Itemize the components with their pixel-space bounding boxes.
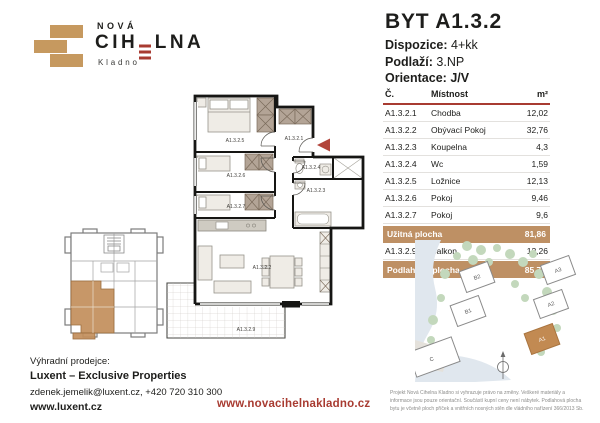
legal-disclaimer: Projekt Nová Cihelna Kladno si vyhrazuje… bbox=[390, 389, 587, 413]
cell-room: Obývací Pokoj bbox=[431, 125, 512, 135]
brochure-page: NOVÁ CIHLNA Kladno BYT A1.3.2 Dispozice:… bbox=[0, 0, 600, 423]
cell-room: Chodba bbox=[431, 108, 512, 118]
brick-icon bbox=[50, 54, 83, 67]
entrance-arrow-icon bbox=[317, 139, 330, 152]
company-logo: NOVÁ CIHLNA Kladno bbox=[34, 21, 214, 71]
living-furniture bbox=[198, 246, 302, 293]
orientace-value: J/V bbox=[450, 71, 469, 85]
cell-no: A1.3.2.2 bbox=[385, 125, 431, 135]
header-no: Č. bbox=[385, 89, 431, 99]
label-living: A1.3.2.2 bbox=[253, 265, 272, 271]
building-a3: A3 bbox=[540, 255, 575, 284]
cell-no: A1.3.2.3 bbox=[385, 142, 431, 152]
contact-email-phone[interactable]: zdenek.jemelik@luxent.cz, +420 720 310 3… bbox=[30, 387, 222, 398]
header-area: m² bbox=[512, 89, 548, 99]
label-room1: A1.3.2.6 bbox=[227, 173, 246, 179]
cell-room: Wc bbox=[431, 159, 512, 169]
table-header: Č. Místnost m² bbox=[383, 87, 550, 105]
cell-room: Pokoj bbox=[431, 193, 512, 203]
label-bath: A1.3.2.3 bbox=[307, 188, 326, 194]
brick-icon bbox=[34, 40, 67, 53]
project-website-link[interactable]: www.novacihelnakladno.cz bbox=[217, 398, 370, 410]
cell-area: 32,76 bbox=[512, 125, 548, 135]
unit-orientace: Orientace: J/V bbox=[385, 71, 469, 85]
cell-area: 12,13 bbox=[512, 176, 548, 186]
table-row: A1.3.2.1 Chodba 12,02 bbox=[383, 105, 550, 122]
dispozice-label: Dispozice: bbox=[385, 38, 448, 52]
cell-no: A1.3.2.1 bbox=[385, 108, 431, 118]
building-b1: B1 bbox=[450, 296, 486, 327]
cell-room: Pokoj bbox=[431, 210, 512, 220]
cell-room: Ložnice bbox=[431, 176, 512, 186]
brick-e-icon bbox=[139, 44, 151, 59]
page-title: BYT A1.3.2 bbox=[385, 10, 502, 34]
usable-area-label: Užitná plocha bbox=[387, 229, 525, 239]
cell-no: A1.3.2.6 bbox=[385, 193, 431, 203]
label-bedroom: A1.3.2.5 bbox=[226, 138, 245, 144]
logo-city: Kladno bbox=[98, 58, 140, 67]
cell-area: 9,6 bbox=[512, 210, 548, 220]
table-row: A1.3.2.3 Koupelna 4,3 bbox=[383, 139, 550, 156]
wardrobe-icons bbox=[245, 98, 311, 210]
dispozice-value: 4+kk bbox=[451, 38, 478, 52]
table-row: A1.3.2.7 Pokoj 9,6 bbox=[383, 207, 550, 224]
table-row: A1.3.2.2 Obývací Pokoj 32,76 bbox=[383, 122, 550, 139]
label-room2: A1.3.2.7 bbox=[227, 204, 246, 210]
label-wc: A1.3.2.4 bbox=[302, 165, 321, 171]
podlazi-value: 3.NP bbox=[436, 55, 464, 69]
cell-no: A1.3.2.7 bbox=[385, 210, 431, 220]
cell-no: A1.3.2.5 bbox=[385, 176, 431, 186]
label-hall: A1.3.2.1 bbox=[285, 136, 304, 142]
table-row: A1.3.2.5 Ložnice 12,13 bbox=[383, 173, 550, 190]
contact-website-link[interactable]: www.luxent.cz bbox=[30, 401, 102, 413]
single-beds bbox=[197, 156, 230, 210]
label-balcony: A1.3.2.9 bbox=[237, 327, 256, 333]
logo-line-cihelna: CIHLNA bbox=[95, 32, 204, 60]
header-room: Místnost bbox=[431, 89, 512, 99]
logo-cihelna-left: CIH bbox=[95, 32, 138, 53]
cell-no: A1.3.2.4 bbox=[385, 159, 431, 169]
cell-area: 9,46 bbox=[512, 193, 548, 203]
brick-icon bbox=[50, 25, 83, 38]
cell-area: 4,3 bbox=[512, 142, 548, 152]
podlazi-label: Podlaží: bbox=[385, 55, 433, 69]
building-a2: A2 bbox=[533, 289, 568, 318]
table-row: A1.3.2.6 Pokoj 9,46 bbox=[383, 190, 550, 207]
cell-area: 1,59 bbox=[512, 159, 548, 169]
apartment-floorplan: A1.3.2.5 A1.3.2.1 A1.3.2.6 A1.3.2.4 A1.3… bbox=[158, 82, 376, 345]
table-row: A1.3.2.4 Wc 1,59 bbox=[383, 156, 550, 173]
contact-heading: Výhradní prodejce: bbox=[30, 356, 110, 367]
orientace-label: Orientace: bbox=[385, 71, 447, 85]
building-a1-highlighted: A1 bbox=[524, 324, 560, 355]
contact-company: Luxent – Exclusive Properties bbox=[30, 370, 187, 382]
site-buildings: B2 B1 A3 A2 A1 C bbox=[415, 255, 576, 377]
usable-area-value: 81,86 bbox=[525, 229, 546, 239]
logo-line-nova: NOVÁ bbox=[97, 21, 137, 31]
bedroom-furniture bbox=[197, 98, 250, 132]
logo-cihelna-right: LNA bbox=[155, 32, 205, 53]
unit-dispozice: Dispozice: 4+kk bbox=[385, 38, 478, 52]
building-floor-miniplan bbox=[57, 225, 172, 342]
unit-podlazi: Podlaží: 3.NP bbox=[385, 55, 464, 69]
building-b2: B2 bbox=[459, 262, 495, 293]
site-plan: B2 B1 A3 A2 A1 C bbox=[415, 240, 587, 382]
cell-area: 12,02 bbox=[512, 108, 548, 118]
cell-room: Koupelna bbox=[431, 142, 512, 152]
